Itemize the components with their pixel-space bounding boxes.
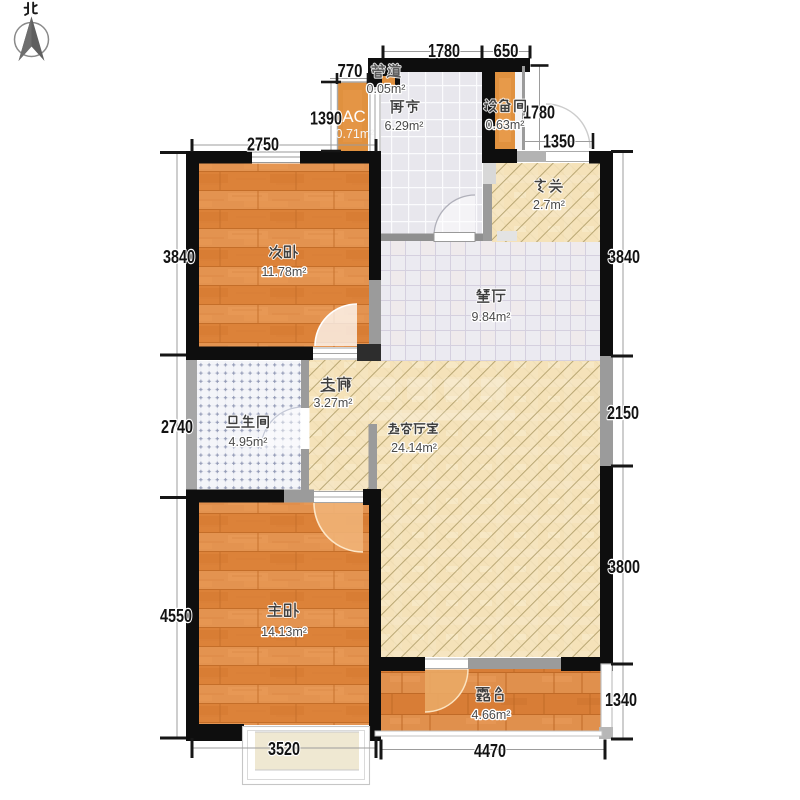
svg-text:0.63m²: 0.63m² bbox=[486, 118, 525, 132]
svg-text:0.71m²: 0.71m² bbox=[336, 127, 375, 141]
svg-text:3.27m²: 3.27m² bbox=[314, 396, 353, 410]
svg-text:2.7m²: 2.7m² bbox=[533, 198, 565, 212]
svg-text:2150: 2150 bbox=[607, 403, 639, 423]
svg-text:1780: 1780 bbox=[428, 41, 460, 61]
svg-text:9.84m²: 9.84m² bbox=[472, 310, 511, 324]
svg-text:1780: 1780 bbox=[523, 103, 555, 123]
svg-text:4470: 4470 bbox=[474, 741, 506, 761]
svg-text:11.78m²: 11.78m² bbox=[262, 265, 307, 279]
svg-text:3800: 3800 bbox=[608, 557, 640, 577]
svg-text:650: 650 bbox=[494, 41, 519, 61]
svg-text:4550: 4550 bbox=[160, 606, 192, 626]
svg-text:6.29m²: 6.29m² bbox=[385, 119, 424, 133]
svg-text:0.05m²: 0.05m² bbox=[367, 82, 406, 96]
svg-text:3520: 3520 bbox=[268, 739, 300, 759]
svg-text:770: 770 bbox=[338, 61, 363, 81]
svg-text:AC: AC bbox=[342, 107, 366, 126]
svg-text:3840: 3840 bbox=[608, 247, 640, 267]
svg-text:2740: 2740 bbox=[161, 417, 193, 437]
svg-text:2750: 2750 bbox=[247, 135, 279, 155]
svg-text:1390: 1390 bbox=[310, 109, 342, 129]
svg-text:1340: 1340 bbox=[605, 690, 637, 710]
svg-text:4.66m²: 4.66m² bbox=[472, 708, 511, 722]
svg-text:24.14m²: 24.14m² bbox=[391, 441, 437, 455]
svg-text:3840: 3840 bbox=[163, 247, 195, 267]
svg-text:14.13m²: 14.13m² bbox=[261, 625, 307, 639]
svg-text:4.95m²: 4.95m² bbox=[229, 435, 268, 449]
svg-text:1350: 1350 bbox=[543, 132, 575, 152]
